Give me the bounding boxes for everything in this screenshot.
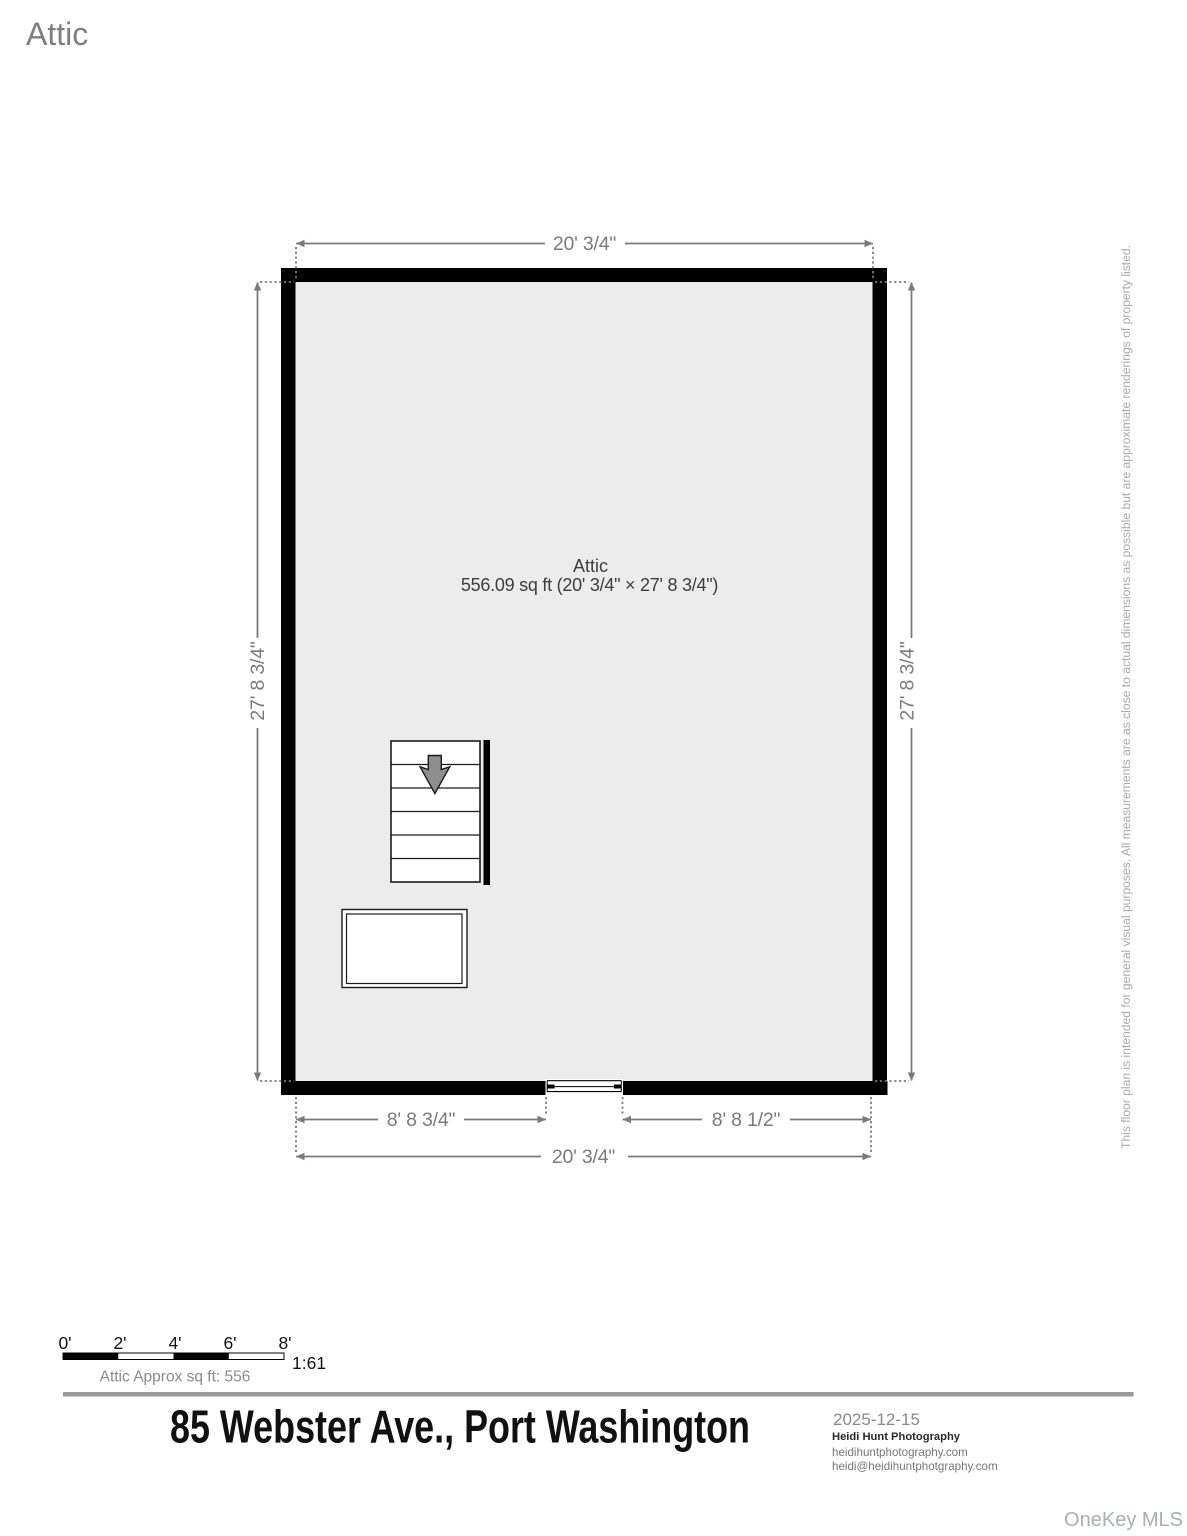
svg-text:27' 8 3/4": 27' 8 3/4" [247, 641, 269, 720]
svg-text:6': 6' [223, 1333, 236, 1353]
svg-text:2': 2' [113, 1333, 126, 1353]
svg-text:20' 3/4": 20' 3/4" [553, 233, 617, 255]
svg-text:27' 8 3/4": 27' 8 3/4" [897, 641, 919, 720]
svg-text:20' 3/4": 20' 3/4" [552, 1146, 616, 1168]
svg-text:85 Webster Ave., Port Washingt: 85 Webster Ave., Port Washington [170, 1401, 750, 1453]
svg-text:8' 8 1/2": 8' 8 1/2" [712, 1109, 781, 1131]
svg-text:556.09 sq ft (20' 3/4" × 27' 8: 556.09 sq ft (20' 3/4" × 27' 8 3/4") [461, 575, 718, 595]
svg-text:8' 8 3/4": 8' 8 3/4" [387, 1109, 456, 1131]
svg-text:Attic: Attic [573, 556, 608, 576]
svg-text:This floor plan is intended fo: This floor plan is intended for general … [1119, 245, 1133, 1149]
svg-text:1:61: 1:61 [292, 1353, 326, 1373]
svg-text:Attic Approx sq ft: 556: Attic Approx sq ft: 556 [100, 1369, 251, 1386]
svg-text:8': 8' [278, 1333, 291, 1353]
svg-text:4': 4' [168, 1333, 181, 1353]
svg-text:0': 0' [58, 1333, 71, 1353]
